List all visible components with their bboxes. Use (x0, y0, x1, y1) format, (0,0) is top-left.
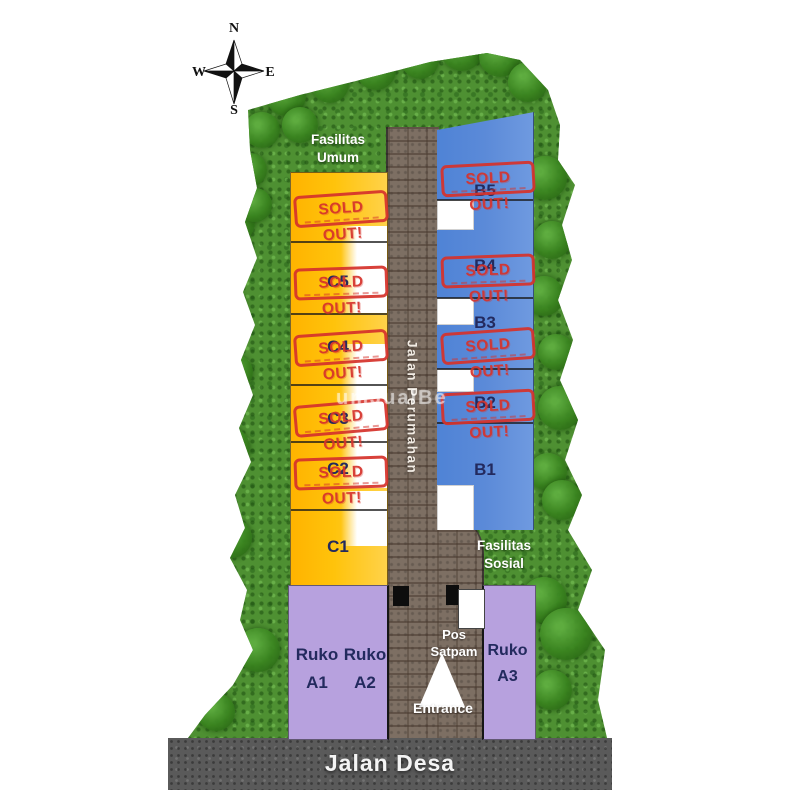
sold-out-stamp: SOLD OUT! (293, 190, 389, 228)
tree-icon (532, 670, 572, 710)
compass-icon: N S W E (192, 16, 276, 116)
tree-icon (209, 199, 255, 245)
entrance-label: Entrance (407, 699, 479, 717)
watermark: umJualBe (336, 387, 448, 410)
tree-icon (206, 288, 246, 328)
tree-icon (233, 153, 267, 187)
fasilitas-sosial-label: Fasilitas Sosial (474, 537, 534, 572)
ruko-a2-label: Ruko A2 (343, 641, 387, 697)
tree-icon (166, 664, 214, 712)
plot-label-b1: B1 (437, 460, 533, 480)
ruko-a1-label: Ruko A1 (295, 641, 339, 697)
tree-icon (540, 608, 592, 660)
tree-icon (508, 62, 548, 102)
tree-icon (238, 188, 272, 222)
ruko-a3-label: Ruko A3 (484, 638, 531, 691)
tree-icon (196, 482, 232, 518)
ruko-a2-unit: A2 (343, 669, 387, 697)
jalan-desa-label: Jalan Desa (168, 750, 612, 777)
sold-out-stamp: SOLD OUT! (293, 265, 388, 300)
tree-icon (356, 50, 396, 90)
building-footprint (437, 485, 474, 531)
tree-icon (542, 480, 582, 520)
sold-out-stamp: SOLD OUT! (293, 329, 389, 367)
tree-icon (533, 221, 571, 259)
compass-west-label: W (192, 65, 206, 80)
compass-north-label: N (229, 21, 239, 36)
tree-icon (441, 29, 483, 71)
sold-out-stamp: SOLD OUT! (293, 455, 388, 490)
compass-south-label: S (230, 103, 238, 116)
tree-icon (185, 565, 231, 611)
fasilitas-umum-label: Fasilitas Umum (292, 131, 384, 166)
pos-satpam-building (458, 589, 485, 629)
tree-icon (401, 41, 439, 79)
tree-icon (197, 693, 235, 731)
tree-icon (176, 620, 216, 660)
tree-icon (206, 426, 250, 470)
ruko-a3-type: Ruko (484, 638, 531, 664)
sold-out-stamp: SOLD OUT! (440, 327, 536, 365)
plot-label-c1: C1 (290, 537, 386, 557)
compass-east-label: E (265, 65, 274, 80)
tree-icon (311, 65, 349, 103)
compass-star (204, 40, 264, 104)
tree-icon (538, 386, 582, 430)
ruko-a3-unit: A3 (484, 664, 531, 690)
ruko-a1-unit: A1 (295, 669, 339, 697)
tree-icon (236, 628, 280, 672)
sold-out-stamp: SOLD OUT! (440, 389, 536, 426)
gate-icon (393, 586, 409, 606)
sold-out-stamp: SOLD OUT! (440, 161, 536, 198)
tree-icon (219, 355, 253, 389)
sold-out-stamp: SOLD OUT! (440, 253, 535, 288)
tree-icon (212, 518, 252, 558)
ruko-a1-type: Ruko (295, 641, 339, 669)
ruko-a2-type: Ruko (343, 641, 387, 669)
tree-icon (244, 112, 280, 148)
site-plan: N S W E C5 C4 C3 C2 C1 (0, 0, 800, 800)
tree-icon (538, 334, 574, 370)
